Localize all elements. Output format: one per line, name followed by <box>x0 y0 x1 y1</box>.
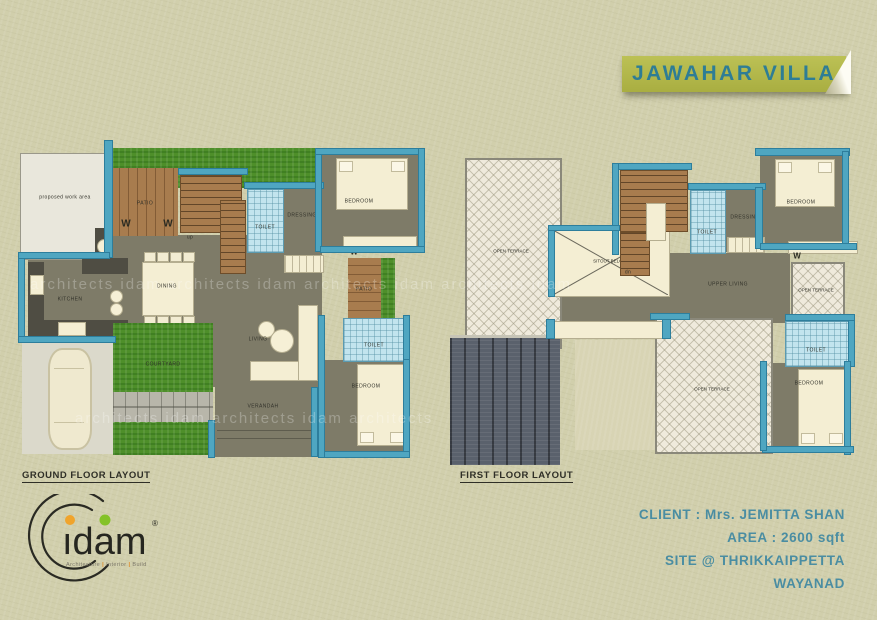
chair <box>157 252 169 262</box>
wall-segment <box>318 451 410 458</box>
wall-segment <box>760 243 857 250</box>
wall-segment <box>244 182 324 189</box>
wall-segment <box>104 140 113 258</box>
wall-segment <box>650 313 690 320</box>
wall-segment <box>403 315 410 363</box>
wardrobe <box>284 255 324 273</box>
wall-segment <box>315 148 425 155</box>
tagline-build: Build <box>132 562 146 568</box>
wall-segment <box>418 148 425 250</box>
sofa-chaise <box>298 305 318 381</box>
site-line: SITE @ THRIKKAIPPETTA <box>639 549 845 572</box>
toilet2-room <box>343 318 407 362</box>
tagline-architecture: Architecture <box>66 562 100 568</box>
stair-dn-label: dn <box>625 270 631 276</box>
wall-segment <box>18 252 110 259</box>
client-line: CLIENT : Mrs. JEMITTA SHAN <box>639 503 845 526</box>
project-title: JAWAHAR VILLA <box>632 62 836 86</box>
wall-segment <box>755 148 850 156</box>
open-terrace-small-label: OPEN TERRACE <box>798 289 833 294</box>
wall-segment <box>320 246 425 253</box>
stair-up-label: up <box>187 235 193 241</box>
sink-bowl <box>110 290 123 303</box>
logo-wordmark: ıdam <box>62 521 146 563</box>
toilet4-room <box>785 321 851 367</box>
wall-segment <box>548 225 555 297</box>
presentation-sheet: JAWAHAR VILLA proposed work area PATIO W… <box>0 0 877 620</box>
title-banner: JAWAHAR VILLA <box>622 56 846 92</box>
chair <box>144 252 156 262</box>
ground-floor-caption: GROUND FLOOR LAYOUT <box>22 470 150 483</box>
wall-segment <box>18 336 116 343</box>
wall-segment <box>762 446 854 453</box>
chair <box>170 252 182 262</box>
courtyard-lawn <box>113 323 213 455</box>
wall-segment <box>546 319 555 339</box>
bedroom3-label: BEDROOM <box>787 200 816 206</box>
work-area-label: proposed work area <box>39 195 90 201</box>
upper-living-label: UPPER LIVING <box>708 282 748 288</box>
wall-segment <box>315 148 322 252</box>
toilet3-label: TOILET <box>697 230 717 236</box>
open-terrace-big-label: OPEN TERRACE <box>694 388 729 393</box>
sloped-roof <box>450 335 560 465</box>
stair-landing <box>646 203 666 241</box>
tagline-separator: | <box>102 562 104 568</box>
living-label: LIVING <box>249 337 268 343</box>
wall-segment <box>662 319 671 339</box>
wall-segment <box>178 168 248 175</box>
wall-segment <box>848 317 855 367</box>
courtyard-label: COURTYARD <box>146 362 181 368</box>
first-floor-plan: OPEN TERRACE SITOUT BELOW dn TOILET DRES… <box>450 145 870 465</box>
tree-symbol: W <box>793 252 801 261</box>
dressing-label: DRESSING <box>287 213 316 219</box>
logo-graphic: ıdam ® <box>24 494 184 590</box>
tree-symbol: W <box>163 219 172 230</box>
wall-segment <box>318 315 325 458</box>
side-garden <box>381 258 395 320</box>
stair-lower-flight <box>220 200 246 274</box>
ground-floor-plan: proposed work area PATIO W W up TOILET D… <box>18 140 432 462</box>
area-line: AREA : 2600 sqft <box>639 526 845 549</box>
open-terrace-left-label: OPEN TERRACE <box>493 250 528 255</box>
idam-logo: ıdam ® Architecture|Interior|Build <box>24 494 194 610</box>
district-line: WAYANAD <box>639 572 845 595</box>
wall-segment <box>403 359 410 457</box>
wall-segment <box>760 361 767 451</box>
wall-segment <box>755 187 763 249</box>
car <box>48 348 92 450</box>
toilet3-room <box>690 190 726 254</box>
verandah-label: VERANDAH <box>248 404 279 410</box>
parapet-band <box>550 321 670 339</box>
toilet2-label: TOILET <box>364 343 384 349</box>
wall-segment <box>548 225 620 231</box>
coffee-table <box>270 329 294 353</box>
kitchen-stove <box>58 322 86 336</box>
bedroom2-label: BEDROOM <box>352 384 381 390</box>
wall-segment <box>785 314 855 321</box>
verandah-floor <box>215 387 321 457</box>
logo-tagline: Architecture|Interior|Build <box>66 562 147 568</box>
wall-segment <box>844 361 851 455</box>
bedroom4-label: BEDROOM <box>795 381 824 387</box>
first-floor-caption: FIRST FLOOR LAYOUT <box>460 470 573 483</box>
wall-segment <box>311 387 318 457</box>
kitchen-sink <box>30 275 44 295</box>
tagline-separator: | <box>128 562 130 568</box>
sink-bowl <box>110 303 123 316</box>
step-line <box>217 430 319 431</box>
patio-label: PATIO <box>137 201 153 207</box>
registered-mark: ® <box>152 519 158 528</box>
tree-symbol: W <box>121 219 130 230</box>
wall-segment <box>612 163 692 170</box>
toilet4-label: TOILET <box>806 348 826 354</box>
tagline-interior: Interior <box>106 562 126 568</box>
kitchen-label: KITCHEN <box>58 297 83 303</box>
bedroom1-label: BEDROOM <box>345 199 374 205</box>
paver-path <box>113 392 213 422</box>
project-info-block: CLIENT : Mrs. JEMITTA SHAN AREA : 2600 s… <box>639 503 845 595</box>
toilet1-label: TOILET <box>255 225 275 231</box>
wall-segment <box>18 258 25 340</box>
wall-segment <box>842 151 849 247</box>
wall-segment <box>612 163 619 255</box>
toilet1-room <box>247 189 284 253</box>
bed <box>357 364 407 446</box>
terrace-approach <box>575 340 655 450</box>
dining-label: DINING <box>157 284 177 290</box>
step-line <box>217 438 319 439</box>
side-patio-label: PATIO <box>356 287 372 293</box>
chair <box>183 252 195 262</box>
wall-segment <box>208 420 215 458</box>
